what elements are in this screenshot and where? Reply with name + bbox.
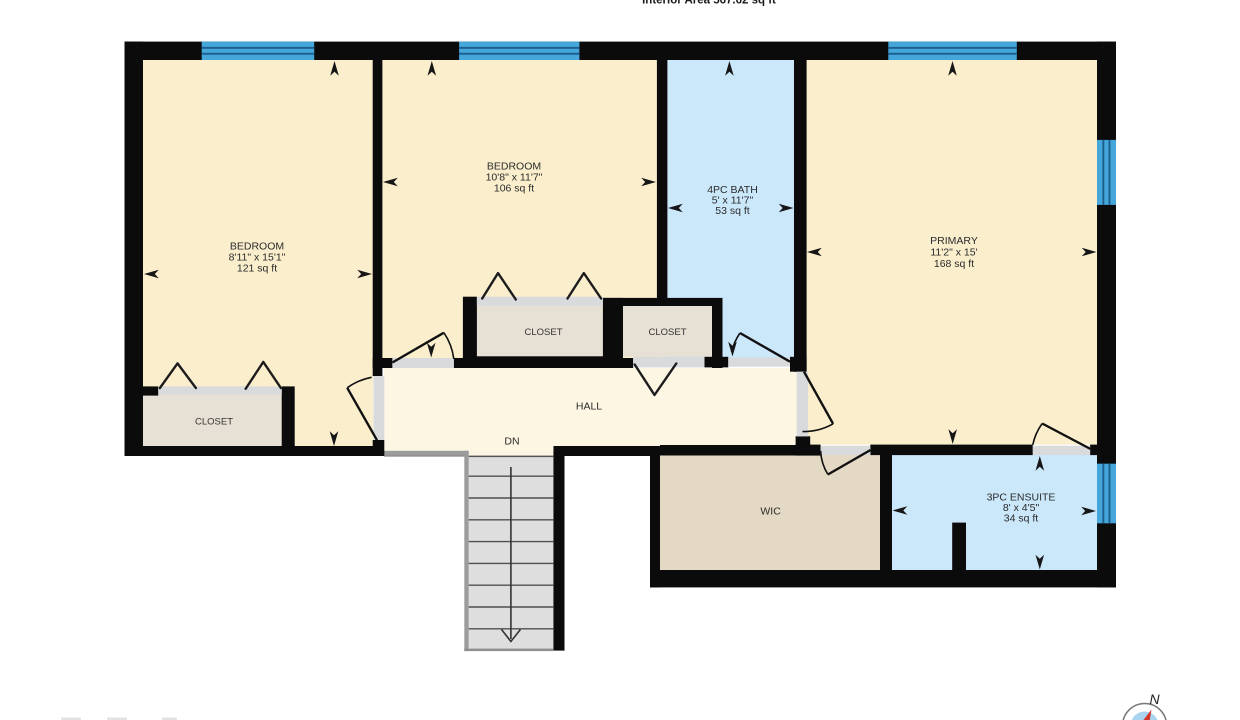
svg-text:106 sq ft: 106 sq ft [494,183,534,195]
svg-text:DN: DN [504,435,519,447]
svg-text:HALL: HALL [576,401,602,413]
svg-text:168 sq ft: 168 sq ft [934,258,974,270]
svg-text:WIC: WIC [760,506,781,518]
svg-text:11'2" x 15': 11'2" x 15' [930,247,977,259]
svg-text:N: N [1149,691,1160,707]
svg-text:34 sq ft: 34 sq ft [1004,513,1039,525]
svg-text:53 sq ft: 53 sq ft [715,205,750,217]
svg-text:CLOSET: CLOSET [648,327,686,338]
svg-text:PRIMARY: PRIMARY [930,235,978,247]
svg-text:121 sq ft: 121 sq ft [237,263,277,275]
svg-text:CLOSET: CLOSET [195,417,233,428]
svg-text:CLOSET: CLOSET [524,327,562,338]
svg-text:Interior Area 567.62 sq ft: Interior Area 567.62 sq ft [642,0,776,7]
